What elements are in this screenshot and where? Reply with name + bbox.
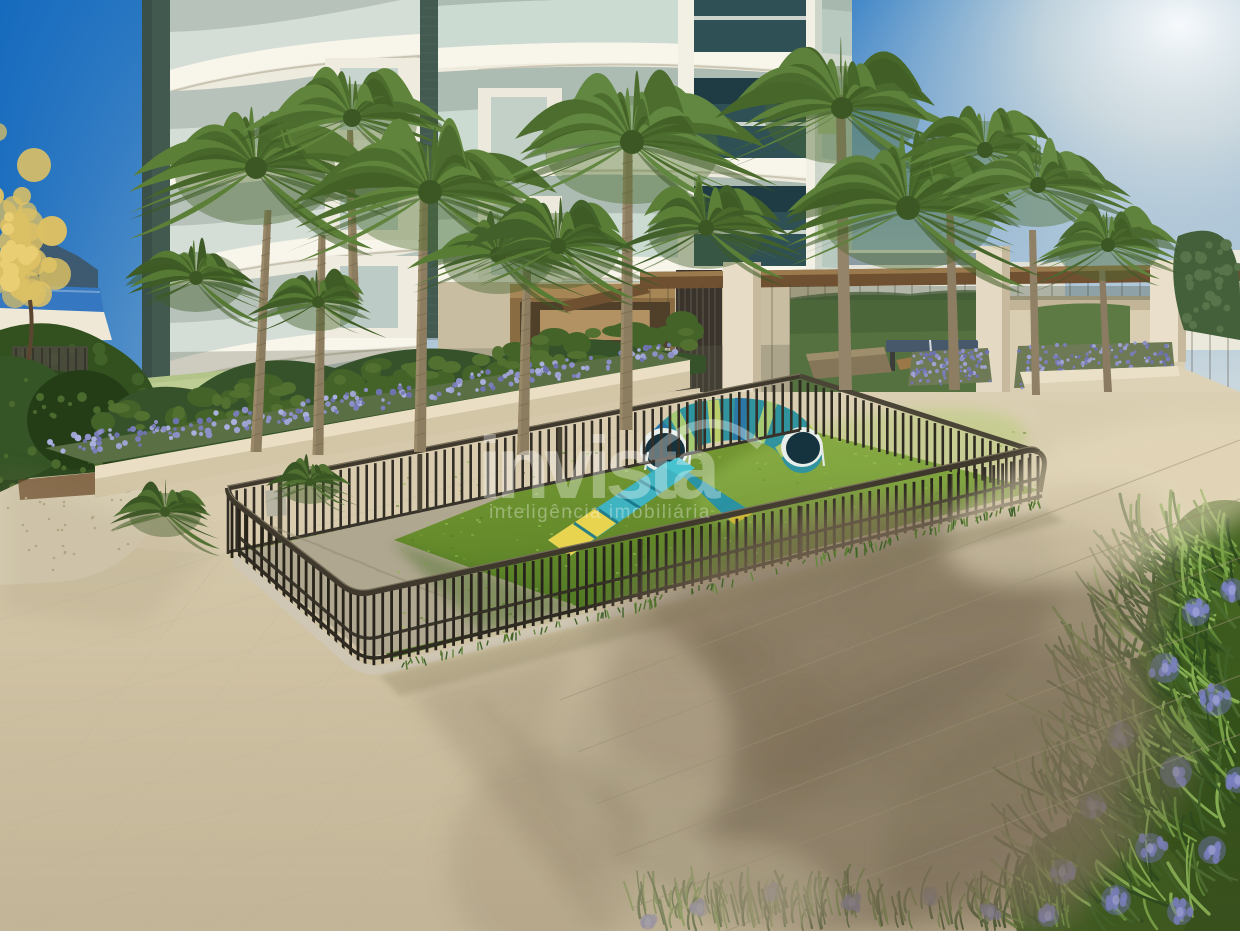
svg-text:inteligência imobiliária: inteligência imobiliária — [489, 502, 711, 523]
